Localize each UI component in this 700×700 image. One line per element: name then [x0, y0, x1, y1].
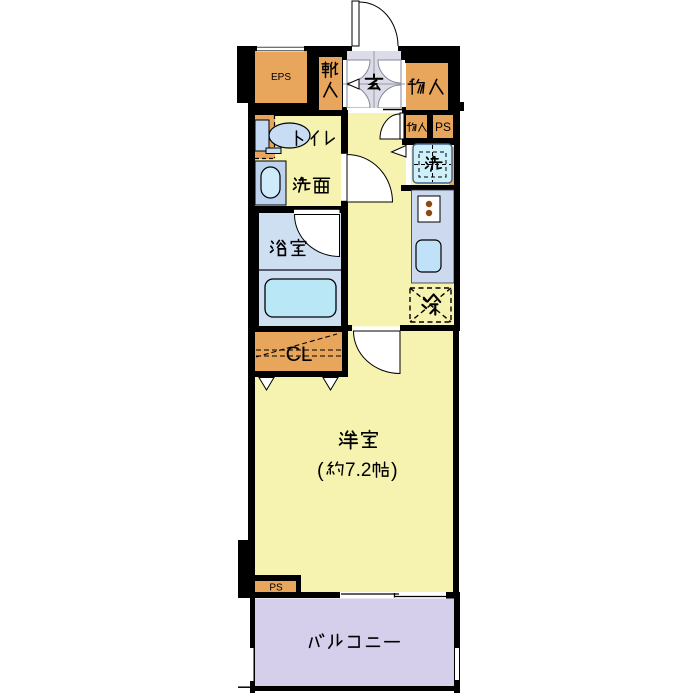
svg-text:CL: CL — [286, 343, 313, 366]
svg-text:7.2: 7.2 — [345, 460, 371, 481]
svg-text:EPS: EPS — [271, 72, 291, 83]
svg-text:PS: PS — [269, 583, 283, 594]
svg-text:(: ( — [317, 460, 324, 482]
svg-text:): ) — [391, 460, 398, 482]
svg-text:PS: PS — [435, 120, 451, 134]
